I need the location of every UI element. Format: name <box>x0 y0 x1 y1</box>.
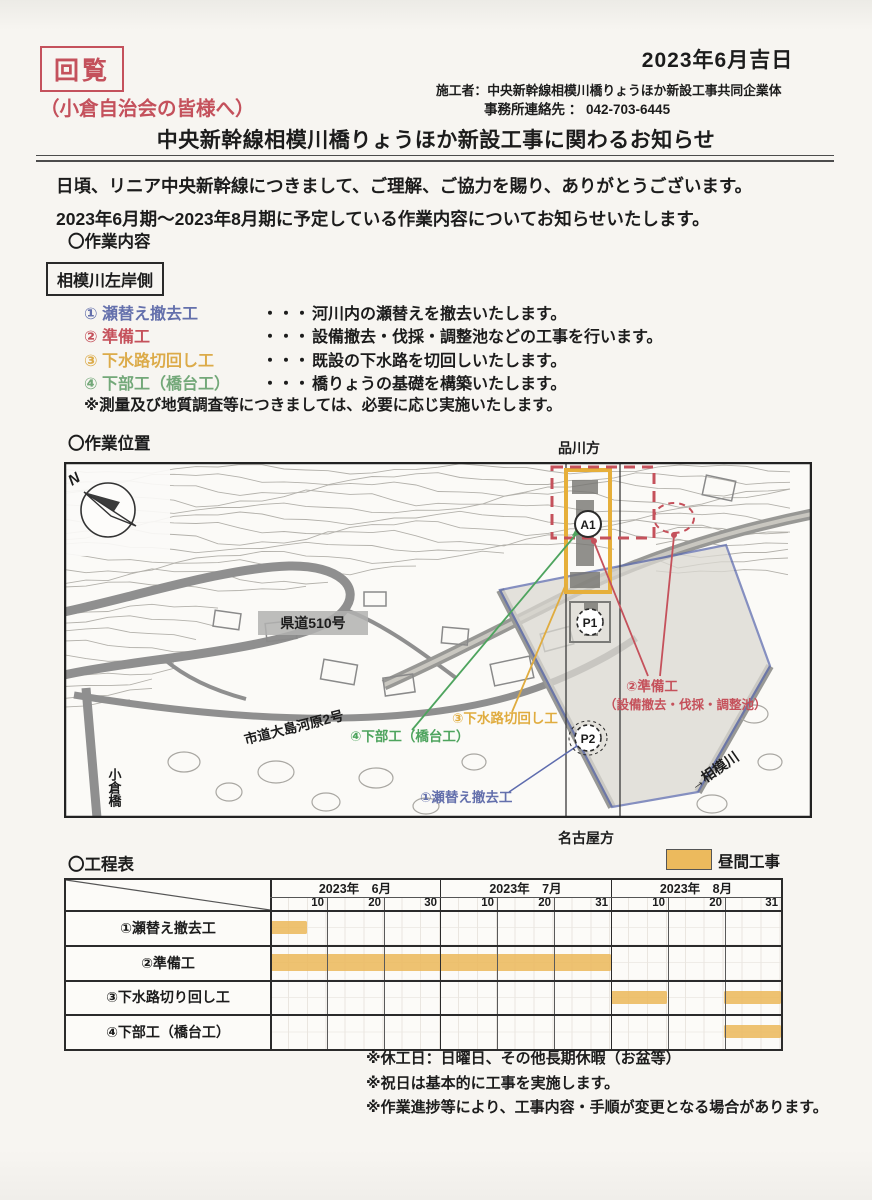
greeting-line2: 2023年6月期～2023年8月期に予定している作業内容についてお知らせいたしま… <box>56 203 836 236</box>
greeting-line1: 日頃、リニア中央新幹線につきまして、ご理解、ご協力を賜り、ありがとうございます。 <box>56 170 836 203</box>
river-left-bank-label: 相模川左岸側 <box>46 262 164 296</box>
work-item-name: ④ 下部工（橋台工） <box>84 370 262 394</box>
addressee-line: （小倉自治会の皆様へ） <box>40 92 255 121</box>
map-label-gesuiro: ③下水路切回し工 <box>452 710 558 726</box>
notice-title: 中央新幹線相模川橋りょうほか新設工事に関わるお知らせ <box>0 124 872 154</box>
work-item: ① 瀬替え撤去工 ・・・ 河川内の瀬替えを撤去いたします。 <box>84 300 824 324</box>
gantt-month-header: 2023年 7月 <box>440 880 611 897</box>
note-line: ※休工日：日曜日、その他長期休暇（お盆等） <box>366 1047 828 1072</box>
gantt-task-label: ②準備工 <box>66 945 270 980</box>
date-text: 2023年6月吉日 <box>620 44 815 74</box>
work-item: ④ 下部工（橋台工） ・・・ 橋りょうの基礎を構築いたします。 <box>84 371 824 395</box>
work-item-desc: 河川内の瀬替えを撤去いたします。 <box>312 300 566 324</box>
direction-label-nagoya: 名古屋方 <box>558 828 648 848</box>
route-510-label: 県道510号 <box>280 615 345 631</box>
gantt-gridline <box>66 980 781 982</box>
greeting-paragraph: 日頃、リニア中央新幹線につきまして、ご理解、ご協力を賜り、ありがとうございます。… <box>56 170 836 236</box>
gantt-task-label: ③下水路切り回し工 <box>66 980 270 1014</box>
gantt-day-tick: 31 <box>554 897 611 910</box>
gantt-day-tick: 31 <box>725 897 781 910</box>
direction-label-shinagawa: 品川方 <box>558 438 638 458</box>
gantt-gridline <box>384 897 385 1049</box>
office-contact-line: 事務所連絡先 ： 042-703-6445 <box>484 98 784 118</box>
gantt-table: 2023年 6月 2023年 7月 2023年 8月 10 20 30 10 2… <box>64 878 783 1051</box>
work-item-dots: ・・・ <box>262 300 312 324</box>
gantt-month-header: 2023年 6月 <box>270 880 440 897</box>
work-item-name: ③ 下水路切回し工 <box>84 347 262 371</box>
work-item-desc: 既設の下水路を切回しいたします。 <box>312 347 566 371</box>
marker-a1-label: A1 <box>580 518 596 532</box>
gantt-header-diagonal <box>66 880 270 910</box>
work-item-dots: ・・・ <box>262 323 312 347</box>
gantt-month-header: 2023年 8月 <box>611 880 781 897</box>
kairan-stamp: 回覧 <box>40 46 124 92</box>
gantt-gridline <box>66 945 781 947</box>
title-rule <box>36 155 834 162</box>
gantt-bar <box>270 921 307 934</box>
gantt-bar <box>611 991 668 1004</box>
map-label-serae: ①瀬替え撤去工 <box>420 789 513 805</box>
schedule-notes: ※休工日：日曜日、その他長期休暇（お盆等） ※祝日は基本的に工事を実施します。 … <box>366 1047 828 1121</box>
gantt-task-label: ④下部工（橋台工） <box>66 1014 270 1049</box>
work-item-desc: 橋りょうの基礎を構築いたします。 <box>312 370 566 394</box>
gantt-gridline <box>66 910 781 912</box>
marker-p2-label: P2 <box>581 732 596 746</box>
gantt-task-label: ①瀬替え撤去工 <box>66 910 270 945</box>
gantt-day-tick: 10 <box>270 897 327 910</box>
map-label-junbi-1: ②準備工 <box>626 678 678 694</box>
ogura-bridge-label: 小倉橋 <box>107 768 123 808</box>
work-item: ③ 下水路切回し工 ・・・ 既設の下水路を切回しいたします。 <box>84 347 824 371</box>
work-item-name: ② 準備工 <box>84 323 262 347</box>
gantt-gridline <box>497 897 498 1049</box>
gantt-bar-lane <box>270 980 781 1014</box>
work-content-heading: 〇作業内容 <box>68 228 151 252</box>
gantt-bar-lane <box>270 910 781 945</box>
work-item-dots: ・・・ <box>262 370 312 394</box>
note-line: ※祝日は基本的に工事を実施します。 <box>366 1072 828 1097</box>
gantt-gridline <box>327 897 328 1049</box>
work-item-desc: 設備撤去・伐採・調整池などの工事を行います。 <box>312 323 662 347</box>
gantt-bar-lane <box>270 945 781 980</box>
work-location-heading: 〇作業位置 <box>68 430 151 454</box>
gantt-day-tick: 30 <box>384 897 440 910</box>
gantt-gridline <box>66 1014 781 1016</box>
gantt-gridline <box>440 880 441 1049</box>
marker-p1-label: P1 <box>583 616 598 630</box>
work-item-name: ① 瀬替え撤去工 <box>84 300 262 324</box>
legend-label: 昼間工事 <box>718 850 780 872</box>
gantt-gridline <box>270 880 272 1049</box>
gantt-gridline <box>611 880 612 1049</box>
gantt-gridline <box>554 897 555 1049</box>
ogura-bridge-road <box>86 688 97 818</box>
map-label-kabuko: ④下部工（橋台工） <box>350 728 469 744</box>
gantt-day-tick: 10 <box>440 897 497 910</box>
gantt-day-tick: 20 <box>497 897 554 910</box>
gantt-day-tick: 20 <box>668 897 725 910</box>
gantt-bar <box>724 991 781 1004</box>
red-leader-dot-1 <box>591 538 597 544</box>
work-location-map: A1 P1 P2 N 県道510号 市道大島河原2号 小倉橋 →相模川 ①瀬替え… <box>64 462 812 818</box>
gantt-gridline <box>725 897 726 1049</box>
schedule-heading: 〇工程表 <box>68 851 134 875</box>
survey-note: ※測量及び地質調査等につきましては、必要に応じ実施いたします。 <box>84 393 562 415</box>
red-leader-dot-2 <box>671 532 677 538</box>
gantt-bar-lane <box>270 1014 781 1049</box>
map-label-junbi-2: （設備撤去・伐採・調整池） <box>604 697 767 712</box>
contractor-line: 施工者：中央新幹線相模川橋りょうほか新設工事共同企業体 <box>436 80 816 99</box>
note-line: ※作業進捗等により、工事内容・手順が変更となる場合があります。 <box>366 1096 828 1121</box>
work-item-list: ① 瀬替え撤去工 ・・・ 河川内の瀬替えを撤去いたします。 ② 準備工 ・・・ … <box>84 300 824 394</box>
gantt-gridline <box>668 897 669 1049</box>
legend-swatch <box>666 849 712 870</box>
scanned-notice-page: 回覧 2023年6月吉日 施工者：中央新幹線相模川橋りょうほか新設工事共同企業体… <box>0 0 872 1200</box>
leader-line-blue <box>509 746 577 792</box>
work-item-dots: ・・・ <box>262 347 312 371</box>
work-item: ② 準備工 ・・・ 設備撤去・伐採・調整池などの工事を行います。 <box>84 324 824 348</box>
gantt-day-tick: 10 <box>611 897 668 910</box>
gantt-day-tick: 20 <box>327 897 384 910</box>
gantt-bar <box>724 1025 781 1038</box>
gantt-gridline <box>270 897 781 898</box>
